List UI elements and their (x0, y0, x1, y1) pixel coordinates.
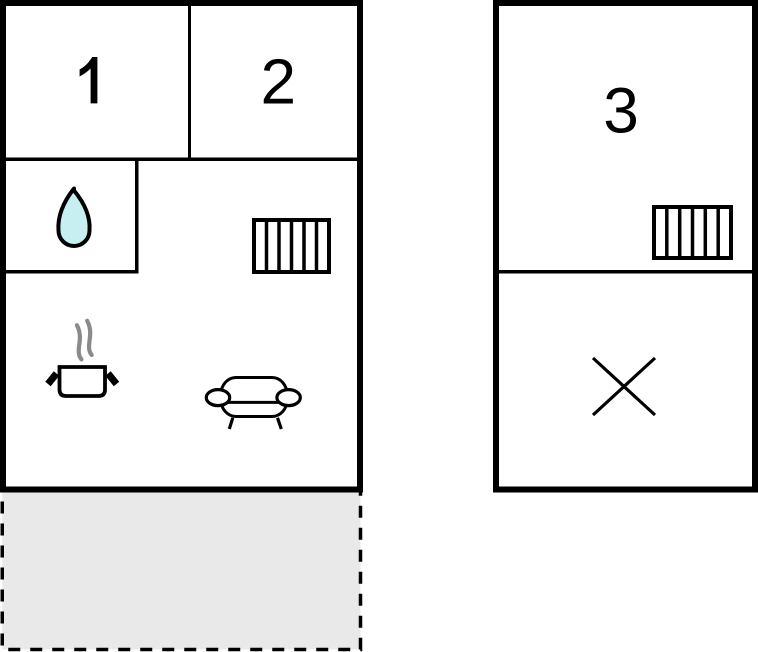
svg-text:2: 2 (261, 45, 297, 117)
svg-text:3: 3 (603, 75, 639, 147)
